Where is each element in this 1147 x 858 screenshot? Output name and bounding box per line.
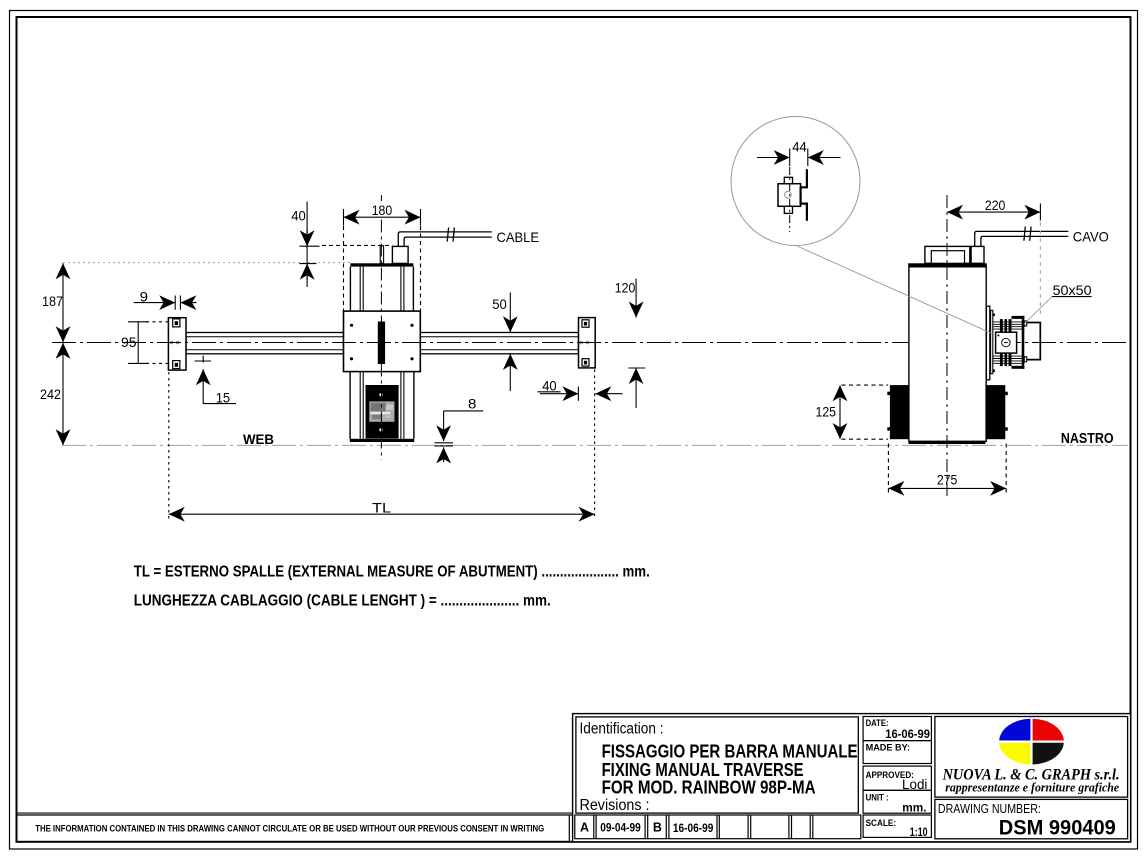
svg-text:FOR MOD. RAINBOW 98P-MA: FOR MOD. RAINBOW 98P-MA — [602, 778, 816, 798]
svg-text:187: 187 — [42, 293, 63, 309]
svg-text:180: 180 — [372, 202, 393, 218]
svg-text:UNIT :: UNIT : — [866, 793, 889, 803]
svg-text:DRAWING NUMBER:: DRAWING NUMBER: — [938, 802, 1041, 816]
svg-text:220: 220 — [985, 197, 1006, 213]
svg-text:50x50: 50x50 — [1053, 282, 1092, 298]
svg-text:mm.: mm. — [902, 801, 926, 815]
svg-text:40: 40 — [542, 377, 557, 393]
svg-text:A: A — [580, 820, 590, 835]
svg-text:125: 125 — [816, 404, 837, 420]
svg-text:16-06-99: 16-06-99 — [885, 727, 930, 741]
svg-text:B: B — [653, 820, 662, 835]
svg-text:44: 44 — [792, 139, 807, 155]
svg-text:SCALE:: SCALE: — [866, 818, 897, 828]
svg-text:THE INFORMATION CONTAINED IN T: THE INFORMATION CONTAINED IN THIS DRAWIN… — [35, 824, 544, 834]
svg-text:09-04-99: 09-04-99 — [600, 821, 641, 835]
svg-text:rappresentanze e forniture gra: rappresentanze e forniture grafiche — [945, 780, 1119, 795]
svg-text:LUNGHEZZA CABLAGGIO (CABLE LEN: LUNGHEZZA CABLAGGIO (CABLE LENGHT ) = ..… — [134, 593, 551, 610]
svg-text:1:10: 1:10 — [910, 825, 928, 839]
svg-text:16-06-99: 16-06-99 — [673, 821, 714, 835]
svg-text:275: 275 — [937, 471, 958, 487]
svg-text:8: 8 — [468, 396, 477, 412]
svg-text:50: 50 — [492, 296, 507, 312]
svg-text:DSM 990409: DSM 990409 — [999, 816, 1116, 840]
svg-text:120: 120 — [615, 279, 636, 295]
svg-text:9: 9 — [140, 289, 149, 305]
svg-text:MADE BY:: MADE BY: — [866, 743, 911, 753]
svg-text:15: 15 — [216, 390, 231, 406]
svg-text:40: 40 — [291, 207, 306, 223]
svg-text:CABLE: CABLE — [497, 229, 540, 245]
svg-text:CAVO: CAVO — [1073, 229, 1109, 245]
svg-text:TL = ESTERNO SPALLE (EXTERNAL: TL = ESTERNO SPALLE (EXTERNAL MEASURE OF… — [134, 564, 650, 581]
svg-text:FISSAGGIO PER BARRA MANUALE: FISSAGGIO PER BARRA MANUALE — [602, 741, 858, 761]
svg-text:242: 242 — [40, 386, 61, 402]
svg-text:95: 95 — [121, 334, 137, 350]
svg-text:Revisions :: Revisions : — [580, 797, 650, 814]
svg-text:TL: TL — [372, 499, 391, 515]
svg-text:WEB: WEB — [243, 431, 274, 447]
svg-text:Identification :: Identification : — [580, 721, 664, 738]
svg-text:NASTRO: NASTRO — [1061, 431, 1114, 447]
svg-text:Lodi: Lodi — [902, 776, 927, 792]
